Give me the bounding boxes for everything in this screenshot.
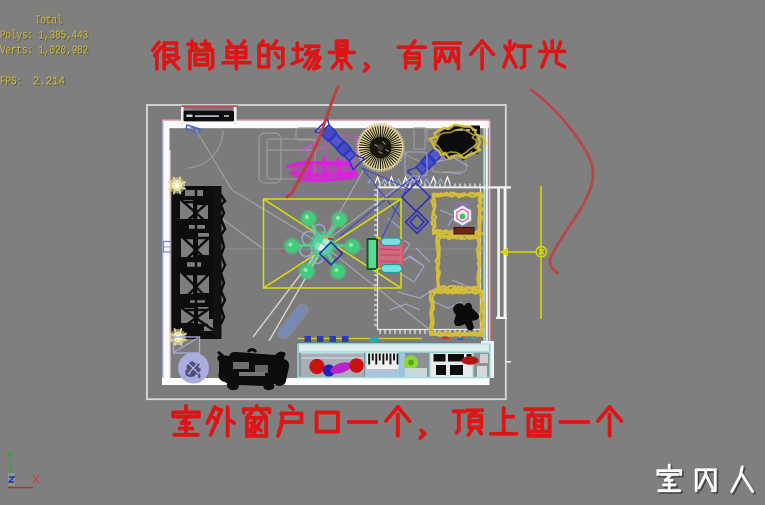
svg-text:FPS:: FPS:: [0, 76, 22, 89]
svg-text:Polys: 1,385,443: Polys: 1,385,443: [0, 30, 88, 43]
svg-text:Total: Total: [35, 15, 63, 28]
svg-text:Verts: 1,020,982: Verts: 1,020,982: [0, 45, 88, 58]
svg-text:2.214: 2.214: [33, 76, 65, 88]
